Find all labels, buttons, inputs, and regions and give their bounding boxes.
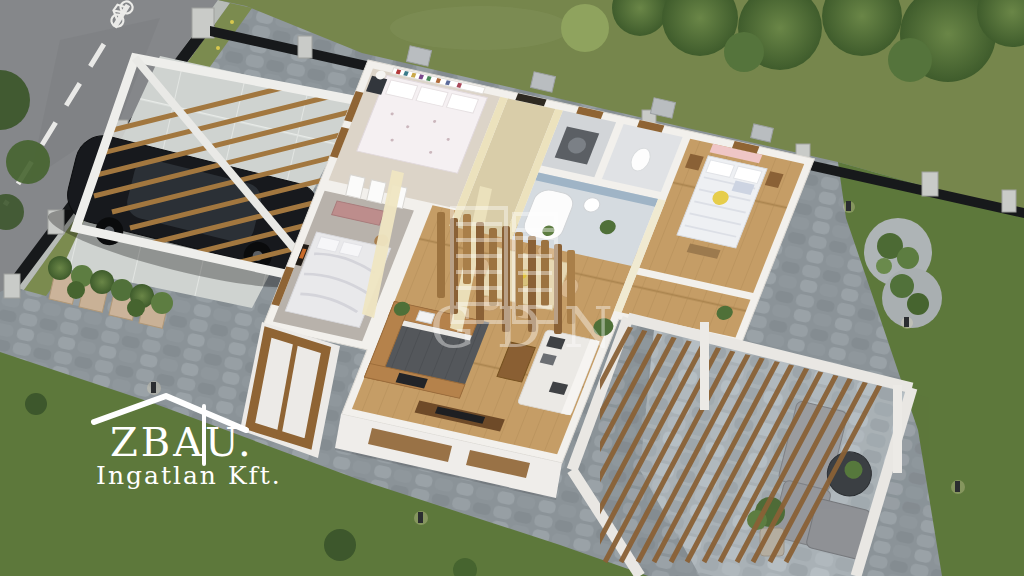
- bollard-light: [414, 511, 428, 525]
- fence-post: [4, 274, 20, 298]
- pergola-post: [893, 385, 902, 473]
- fence-post: [922, 172, 938, 196]
- logo-subtitle: Ingatlan Kft.: [96, 461, 282, 490]
- bollard-light: [951, 480, 965, 494]
- pergola-post: [700, 322, 709, 410]
- bollard-light: [901, 317, 913, 329]
- bollard-light: [147, 381, 161, 395]
- bush: [25, 393, 47, 415]
- fence-post: [298, 36, 312, 58]
- bollard-light: [843, 201, 855, 213]
- render-scene: GDN ZBAU. Ingatlan Kft.: [0, 0, 1024, 576]
- watermark-text: GDN: [430, 295, 635, 360]
- logo-title: ZBAU.: [110, 419, 254, 465]
- bush: [324, 529, 356, 561]
- floorplan-render: GDN ZBAU. Ingatlan Kft.: [0, 0, 1024, 576]
- lawn-highlight: [390, 6, 570, 50]
- fence-post: [1002, 190, 1016, 212]
